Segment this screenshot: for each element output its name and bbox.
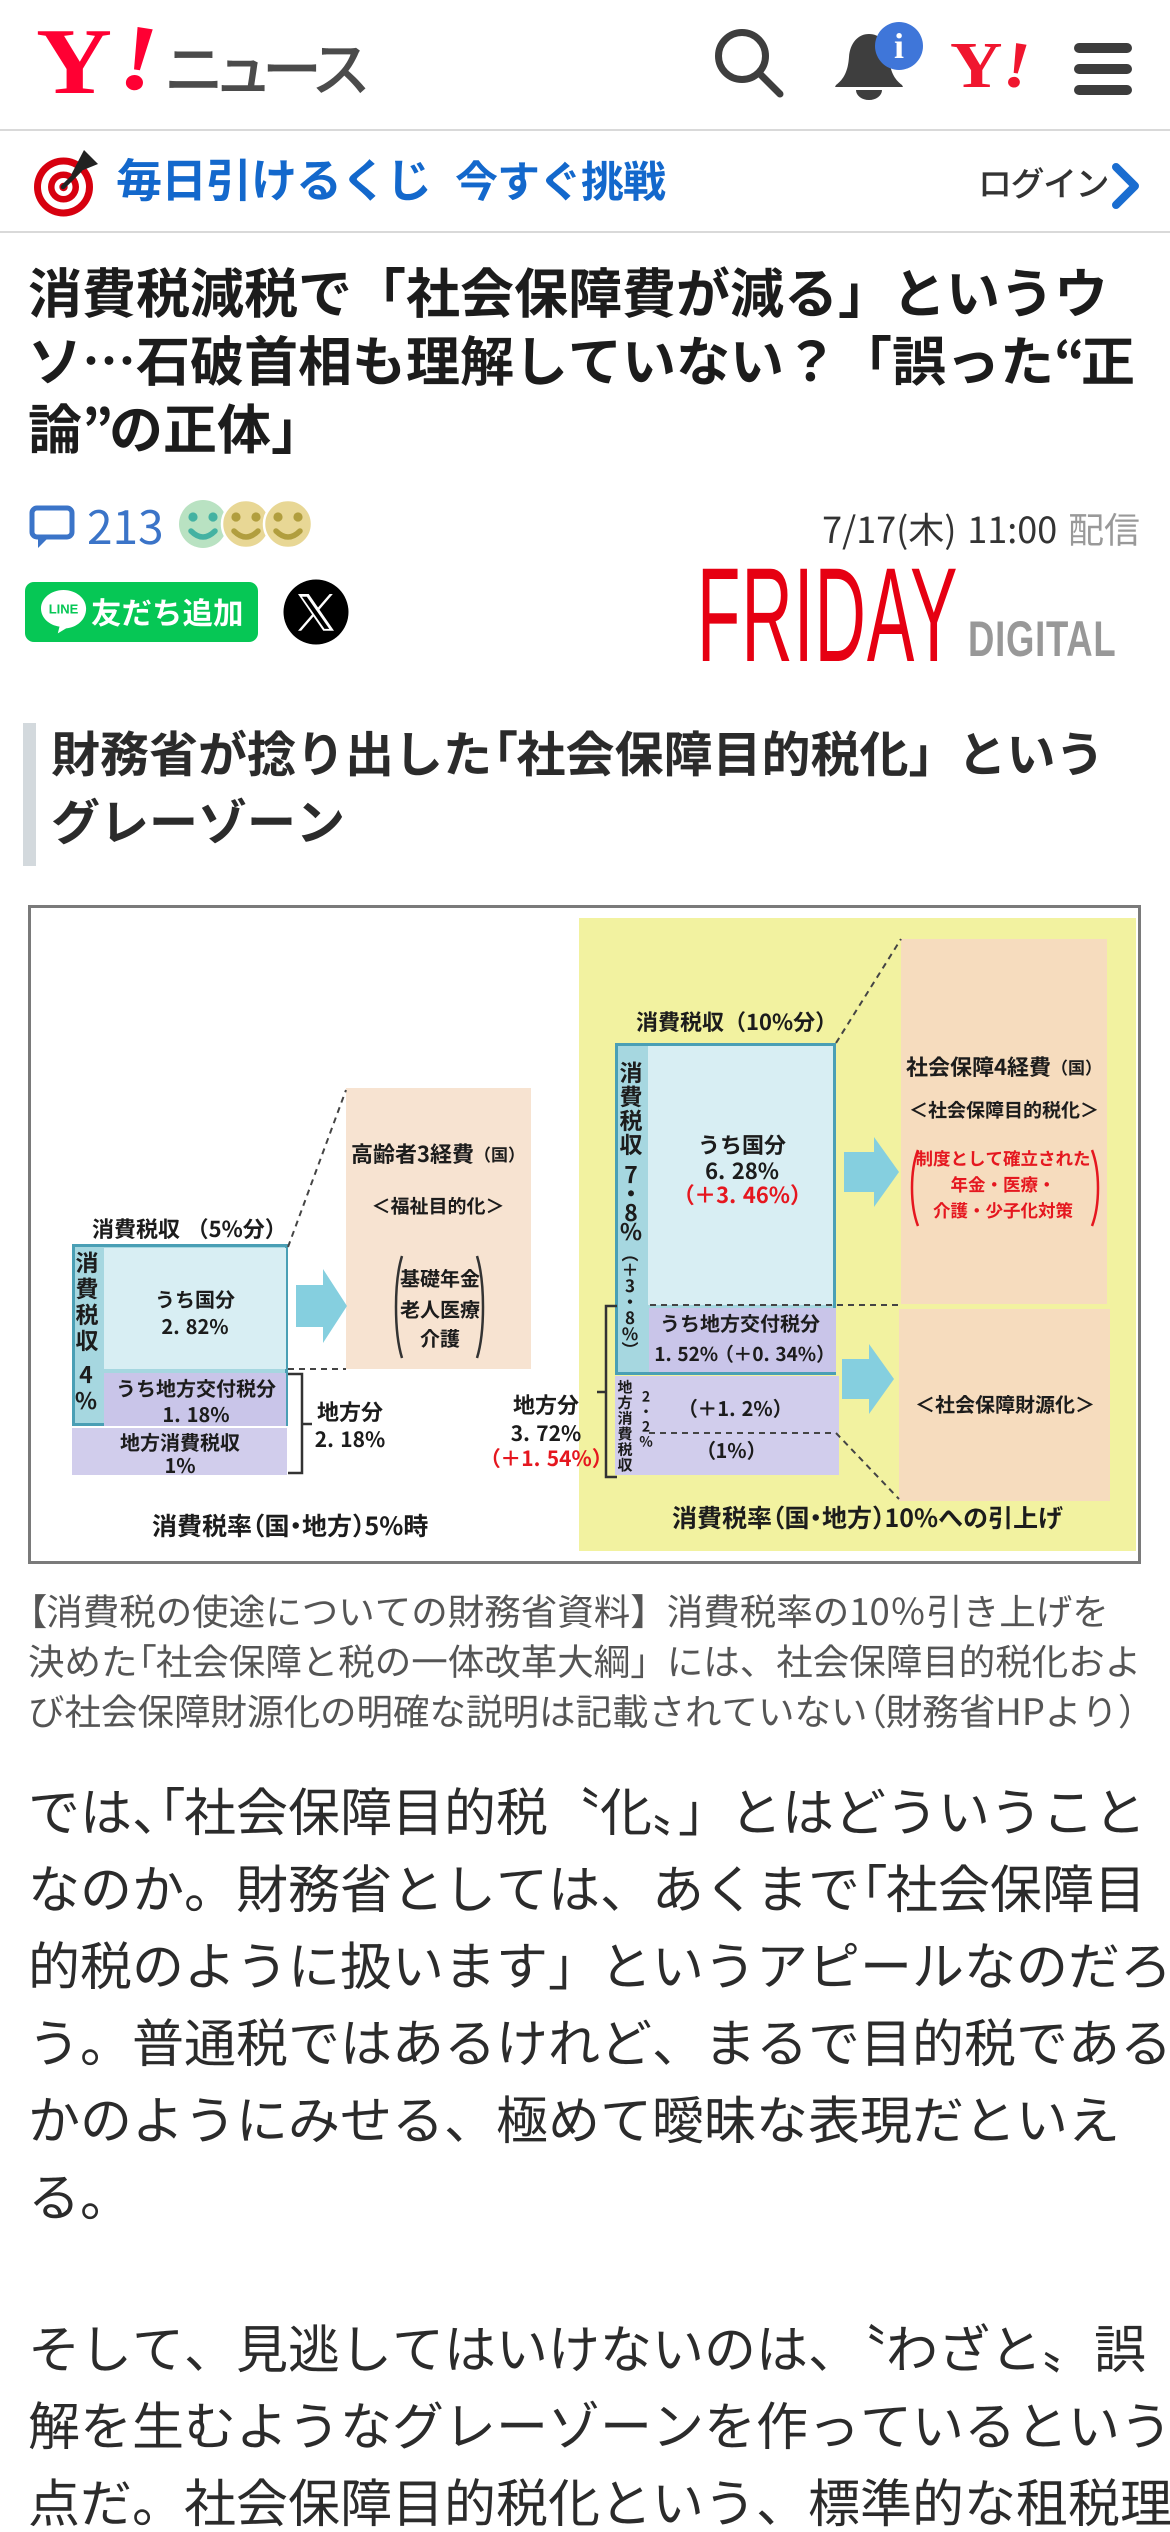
svg-text:i: i [894, 26, 904, 66]
svg-text:LINE: LINE [49, 602, 79, 617]
